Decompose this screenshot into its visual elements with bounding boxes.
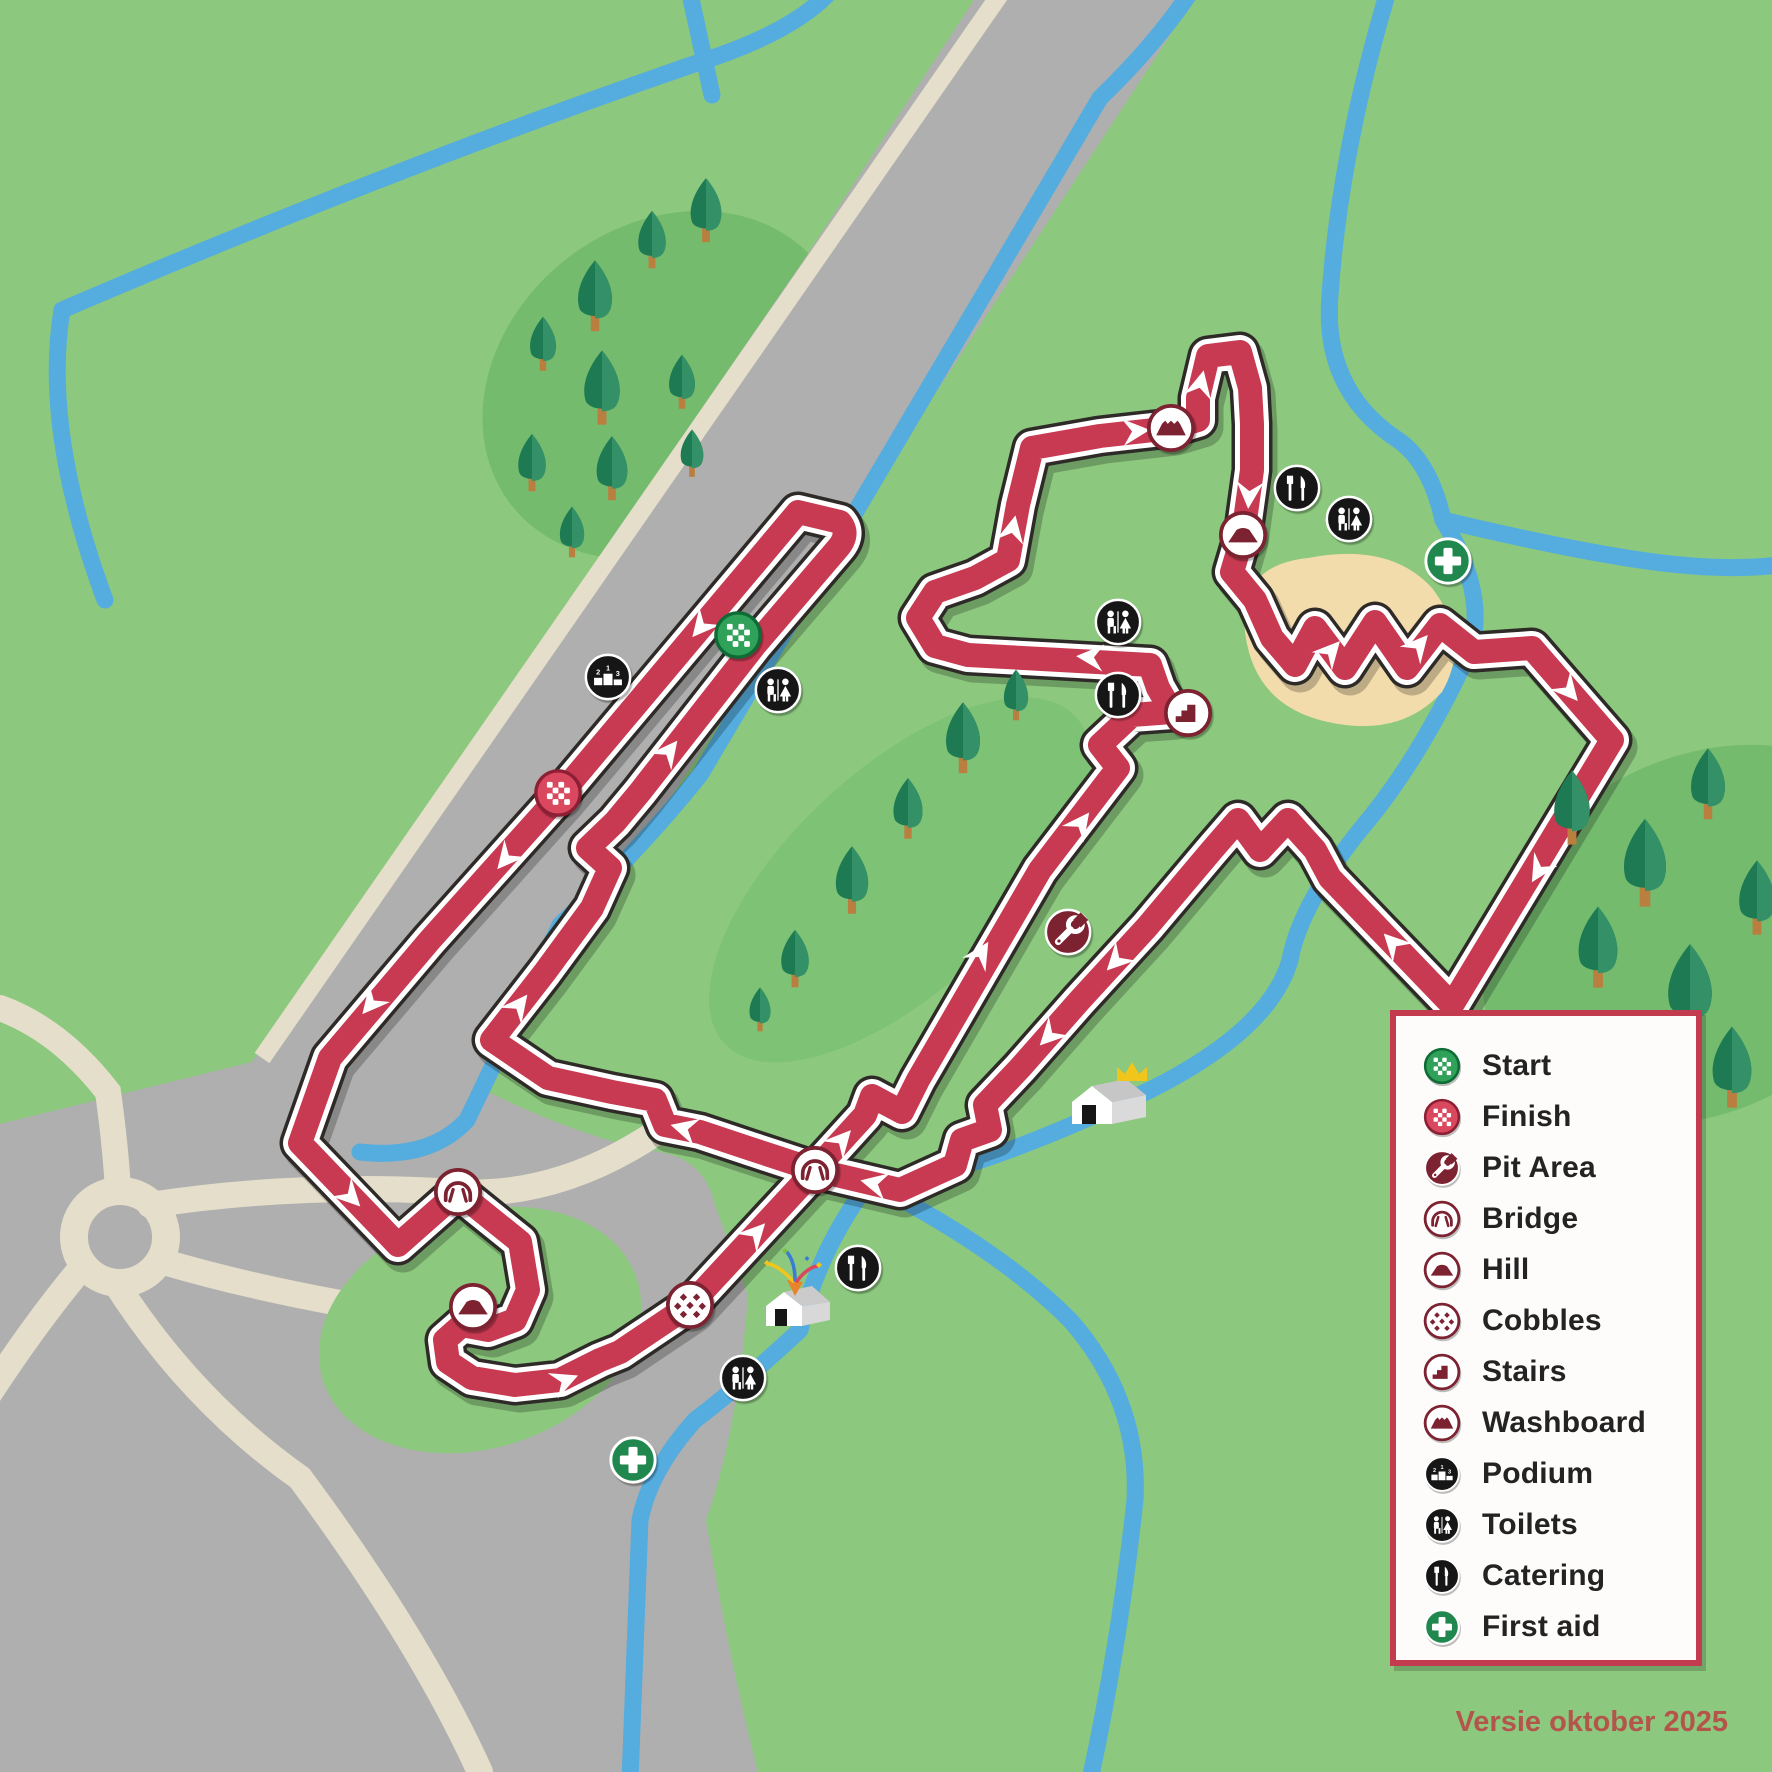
legend-label: Pit Area: [1482, 1153, 1596, 1183]
legend-item-bridge: Bridge: [1422, 1193, 1696, 1244]
washboard-icon: [1425, 1406, 1459, 1440]
podium-icon: [1422, 1454, 1462, 1494]
washboard-icon: [1149, 406, 1193, 450]
legend-item-finish: Finish: [1422, 1091, 1696, 1142]
legend-item-washboard: Washboard: [1422, 1397, 1696, 1448]
bridge-icon: [436, 1170, 480, 1214]
hill-icon: [1425, 1253, 1459, 1287]
legend-label: Start: [1482, 1051, 1551, 1081]
cobbles-icon: [1425, 1304, 1459, 1338]
legend-item-firstaid: First aid: [1422, 1601, 1696, 1652]
pit-icon: [1425, 1151, 1459, 1185]
legend-label: Catering: [1482, 1561, 1605, 1591]
pit-icon: [1422, 1148, 1462, 1188]
hill-icon: [451, 1285, 495, 1329]
legend-label: Hill: [1482, 1255, 1529, 1285]
catering-icon: [1422, 1556, 1462, 1596]
hill-icon: [1422, 1250, 1462, 1290]
toilets-icon: [1096, 600, 1140, 644]
toilets-icon: [1425, 1508, 1459, 1542]
start-icon: [716, 613, 760, 657]
finish-icon: [1422, 1097, 1462, 1137]
start-icon: [1422, 1046, 1462, 1086]
cobbles-icon: [668, 1283, 712, 1327]
washboard-icon: [1422, 1403, 1462, 1443]
legend-item-start: Start: [1422, 1040, 1696, 1091]
bridge-icon: [1422, 1199, 1462, 1239]
legend-label: Podium: [1482, 1459, 1593, 1489]
firstaid-icon: [1422, 1607, 1462, 1647]
bridge-icon: [793, 1148, 837, 1192]
pit-icon: [1046, 910, 1090, 954]
legend-label: First aid: [1482, 1612, 1601, 1642]
legend-label: Stairs: [1482, 1357, 1567, 1387]
legend-item-pit: Pit Area: [1422, 1142, 1696, 1193]
toilets-icon: [721, 1356, 765, 1400]
hill-icon: [1221, 513, 1265, 557]
legend-item-hill: Hill: [1422, 1244, 1696, 1295]
legend-label: Bridge: [1482, 1204, 1578, 1234]
finish-icon: [536, 771, 580, 815]
toilets-icon: [1422, 1505, 1462, 1545]
bridge-icon: [1425, 1202, 1459, 1236]
podium-icon: [586, 655, 630, 699]
legend-item-podium: Podium: [1422, 1448, 1696, 1499]
legend-item-toilets: Toilets: [1422, 1499, 1696, 1550]
legend-label: Washboard: [1482, 1408, 1646, 1438]
catering-icon: [836, 1246, 880, 1290]
legend-label: Cobbles: [1482, 1306, 1602, 1336]
catering-icon: [1275, 466, 1319, 510]
firstaid-icon: [611, 1438, 655, 1482]
stairs-icon: [1166, 691, 1210, 735]
legend-item-catering: Catering: [1422, 1550, 1696, 1601]
firstaid-icon: [1425, 1610, 1459, 1644]
catering-icon: [1096, 673, 1140, 717]
catering-icon: [1425, 1559, 1459, 1593]
legend-item-stairs: Stairs: [1422, 1346, 1696, 1397]
stairs-icon: [1422, 1352, 1462, 1392]
legend-item-cobbles: Cobbles: [1422, 1295, 1696, 1346]
course-map: 213: [0, 0, 1772, 1772]
toilets-icon: [1327, 497, 1371, 541]
version-label: Versie oktober 2025: [1456, 1706, 1728, 1739]
finish-icon: [1425, 1100, 1459, 1134]
toilets-icon: [756, 668, 800, 712]
firstaid-icon: [1426, 539, 1470, 583]
legend-label: Finish: [1482, 1102, 1572, 1132]
podium-icon: [1425, 1457, 1459, 1491]
legend-label: Toilets: [1482, 1510, 1578, 1540]
cobbles-icon: [1422, 1301, 1462, 1341]
stairs-icon: [1425, 1355, 1459, 1389]
legend: StartFinishPit AreaBridgeHillCobblesStai…: [1390, 1010, 1702, 1666]
start-icon: [1425, 1049, 1459, 1083]
